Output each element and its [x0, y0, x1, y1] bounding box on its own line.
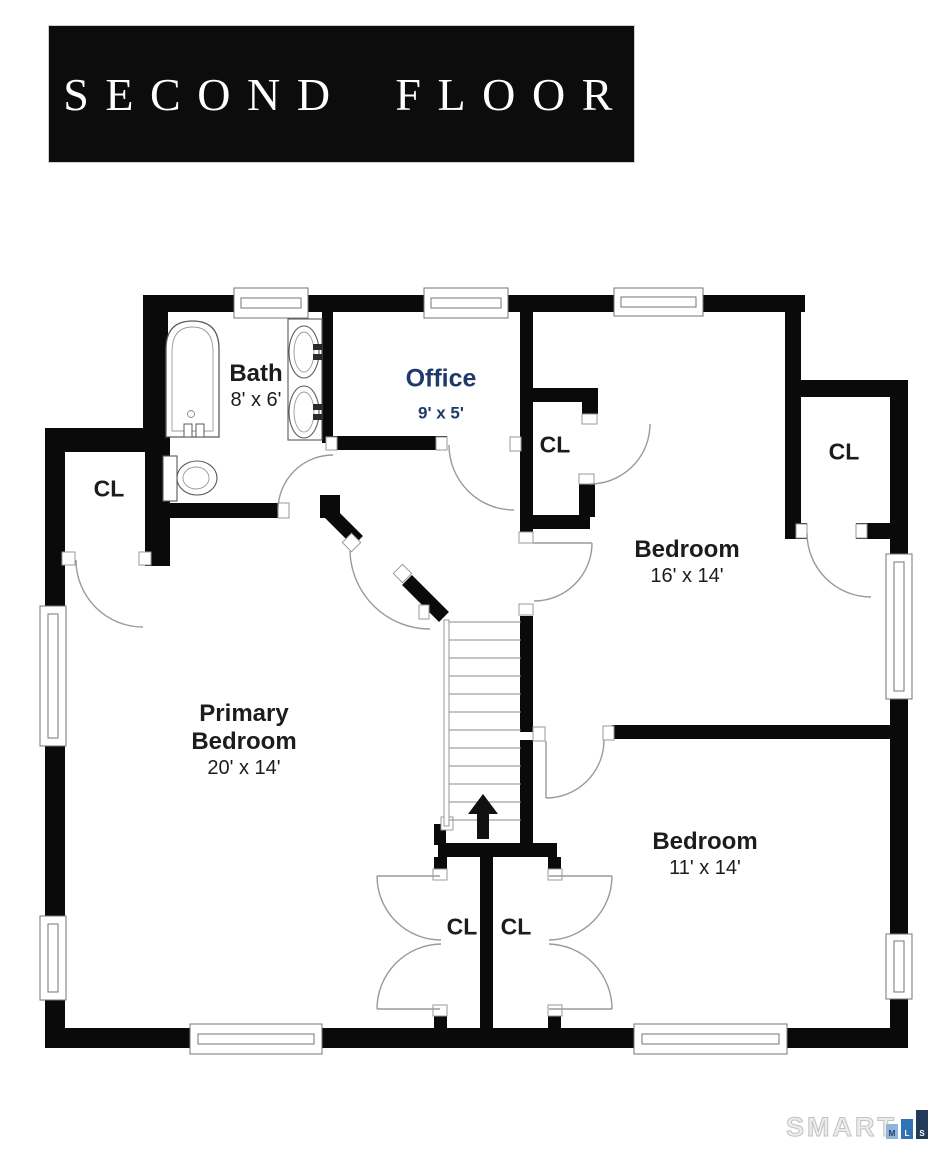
- window: [614, 288, 703, 316]
- window: [886, 554, 912, 699]
- window: [40, 916, 66, 1000]
- window: [40, 606, 66, 746]
- room-label-bedroom-lower: Bedroom 11' x 14': [652, 828, 757, 880]
- office-closet-door-arc: [590, 424, 650, 484]
- bedroom-right-door-arc: [533, 543, 592, 601]
- smartmls-bar-s: S: [916, 1110, 928, 1139]
- closet-left-door-arc-top: [377, 876, 441, 940]
- toilet-icon: [163, 456, 217, 501]
- double-vanity-sinks-icon: [288, 319, 322, 440]
- window: [886, 934, 912, 999]
- smartmls-bar-l: L: [901, 1119, 913, 1139]
- stairs-up-arrow-icon: [468, 794, 498, 839]
- room-label-office: Office 9' x 5': [406, 365, 477, 424]
- window: [634, 1024, 787, 1054]
- floor-plan-page: SECOND FLOOR: [0, 0, 944, 1158]
- room-label-bedroom-right: Bedroom 16' x 14': [634, 536, 739, 588]
- primary-closet-door-arc: [76, 560, 143, 627]
- floor-plan-drawing: [0, 0, 944, 1158]
- window: [234, 288, 308, 318]
- bedroom-right-closet-door-arc: [807, 533, 871, 597]
- closet-label-office: CL: [540, 432, 571, 459]
- window: [190, 1024, 322, 1054]
- closet-label-primary: CL: [94, 476, 125, 503]
- bedroom-lower-door-arc: [546, 740, 604, 798]
- room-label-bath: Bath 8' x 6': [229, 360, 282, 412]
- smartmls-bar-m: M: [886, 1124, 898, 1139]
- closet-left-door-arc-bottom: [377, 944, 441, 1009]
- room-label-primary-bedroom: Primary Bedroom 20' x 14': [191, 700, 296, 780]
- office-door-arc: [449, 445, 514, 510]
- window: [424, 288, 508, 318]
- closet-right-door-arc-top: [549, 876, 612, 940]
- closet-label-bedroom-right: CL: [829, 439, 860, 466]
- staircase: [444, 620, 521, 839]
- closet-label-bottom-left: CL: [447, 914, 478, 941]
- closet-label-bottom-right: CL: [501, 914, 532, 941]
- closet-right-door-arc-bottom: [549, 944, 612, 1009]
- smartmls-watermark-brand: SMART: [786, 1112, 897, 1143]
